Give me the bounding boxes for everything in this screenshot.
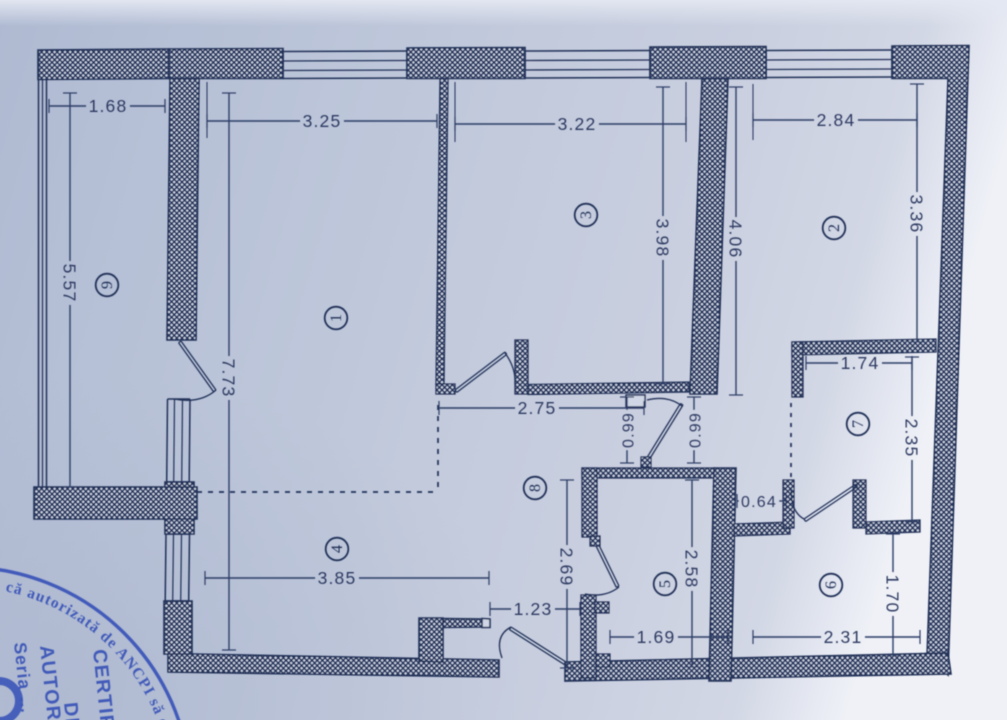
svg-text:3.98: 3.98 [653, 219, 673, 258]
svg-text:2.84: 2.84 [817, 110, 856, 130]
svg-text:3: 3 [578, 211, 595, 219]
svg-text:2.69: 2.69 [557, 548, 577, 587]
svg-text:1.23: 1.23 [514, 599, 553, 619]
svg-text:2.31: 2.31 [824, 627, 863, 647]
svg-text:1.74: 1.74 [841, 353, 880, 373]
svg-text:9: 9 [99, 281, 116, 289]
svg-text:2.58: 2.58 [682, 550, 702, 589]
svg-text:5: 5 [657, 580, 674, 588]
svg-text:1.70: 1.70 [883, 575, 903, 614]
svg-text:4.06: 4.06 [726, 220, 746, 259]
svg-text:4: 4 [329, 545, 346, 553]
svg-text:0.99: 0.99 [688, 412, 705, 448]
svg-text:8: 8 [527, 484, 544, 492]
svg-text:3.36: 3.36 [907, 195, 927, 234]
svg-text:3.25: 3.25 [303, 111, 342, 131]
svg-text:2: 2 [826, 224, 843, 232]
svg-text:2.35: 2.35 [902, 419, 922, 458]
svg-text:1.68: 1.68 [89, 96, 128, 116]
svg-text:3.22: 3.22 [558, 114, 597, 134]
svg-text:0.64: 0.64 [741, 494, 777, 511]
svg-text:0.99: 0.99 [621, 412, 638, 448]
svg-text:1: 1 [328, 314, 345, 322]
svg-text:1.69: 1.69 [637, 627, 676, 647]
svg-text:7.73: 7.73 [219, 359, 239, 398]
svg-text:5.57: 5.57 [60, 264, 80, 303]
svg-text:2.75: 2.75 [518, 398, 557, 418]
svg-text:6: 6 [823, 581, 840, 589]
svg-text:7: 7 [850, 420, 867, 428]
svg-text:3.85: 3.85 [318, 568, 357, 588]
